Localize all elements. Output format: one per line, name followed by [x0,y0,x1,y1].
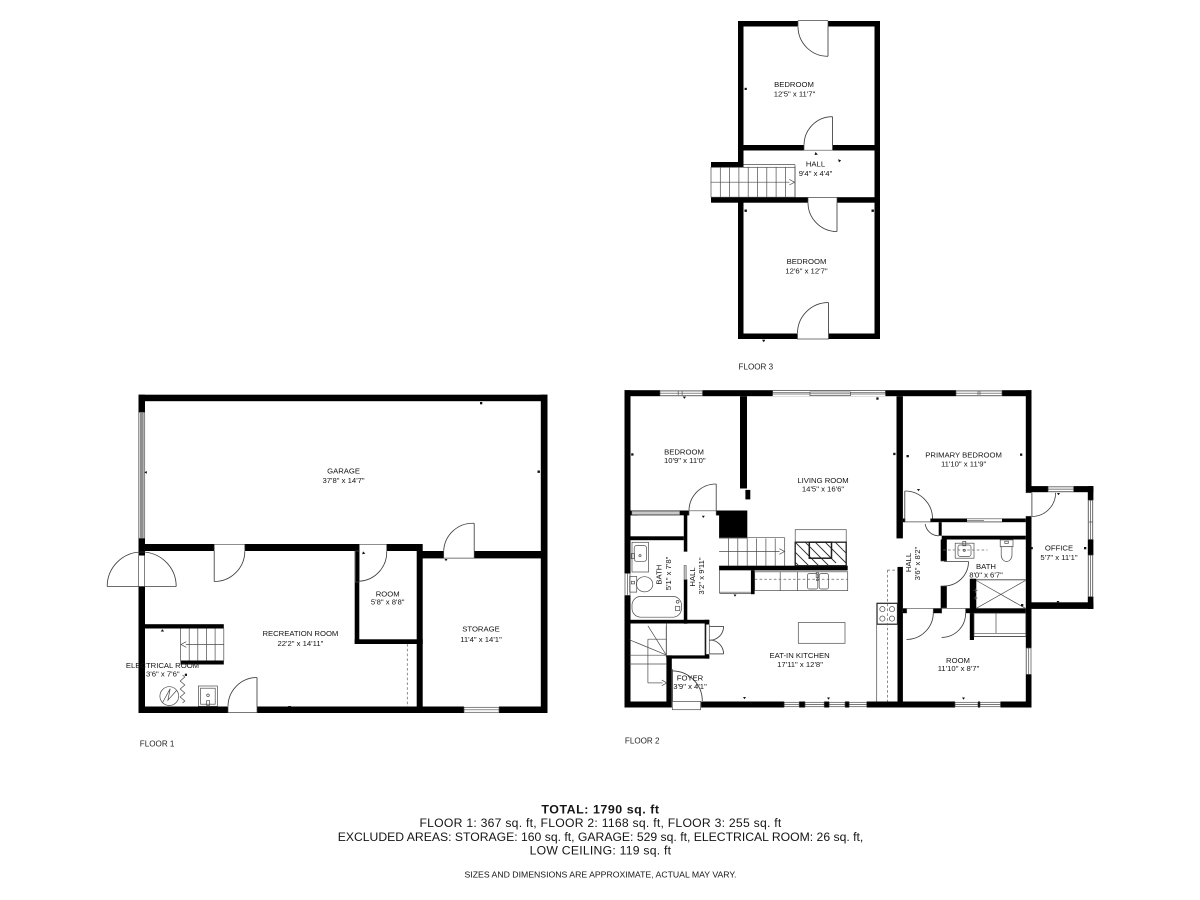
svg-text:FLOOR 1: 367 sq. ft, FLOOR 2:: FLOOR 1: 367 sq. ft, FLOOR 2: 1168 sq. f… [419,816,781,830]
svg-text:14'5" x 16'6": 14'5" x 16'6" [802,484,844,493]
svg-text:BATH: BATH [655,565,664,585]
svg-text:TOTAL: 1790 sq. ft: TOTAL: 1790 sq. ft [541,803,659,817]
svg-text:BEDROOM: BEDROOM [774,80,814,89]
svg-text:EAT-IN KITCHEN: EAT-IN KITCHEN [770,651,830,660]
svg-text:11'10" x 11'9": 11'10" x 11'9" [941,459,987,468]
svg-text:EXCLUDED AREAS: STORAGE: 160 s: EXCLUDED AREAS: STORAGE: 160 sq. ft, GAR… [338,830,864,844]
svg-text:12'5" x 11'7": 12'5" x 11'7" [774,90,816,99]
svg-text:LOW CEILING: 119 sq. ft: LOW CEILING: 119 sq. ft [530,844,672,858]
svg-text:5'8" x 8'8": 5'8" x 8'8" [371,598,405,607]
svg-text:3'9" x 4'1": 3'9" x 4'1" [673,682,707,691]
svg-text:22'2" x 14'11": 22'2" x 14'11" [277,639,323,648]
svg-text:5'7" x 11'1": 5'7" x 11'1" [1040,553,1078,562]
svg-text:PRIMARY BEDROOM: PRIMARY BEDROOM [925,451,1002,460]
svg-text:12'6" x 12'7": 12'6" x 12'7" [785,266,827,275]
svg-text:FLOOR 2: FLOOR 2 [625,736,660,745]
svg-text:11'10" x 8'7": 11'10" x 8'7" [938,664,980,673]
svg-text:BEDROOM: BEDROOM [787,257,827,266]
svg-text:9'4" x 4'4": 9'4" x 4'4" [799,169,833,178]
svg-text:STORAGE: STORAGE [462,625,499,634]
svg-text:10'9" x 11'0": 10'9" x 11'0" [664,456,706,465]
svg-text:RECREATION ROOM: RECREATION ROOM [262,629,338,638]
svg-text:HALL: HALL [688,567,697,587]
svg-text:HALL: HALL [904,552,913,572]
svg-text:HALL: HALL [806,160,826,169]
svg-text:3'6" x 8'2": 3'6" x 8'2" [913,546,922,580]
svg-text:17'11" x 12'8": 17'11" x 12'8" [777,660,823,669]
svg-text:GARAGE: GARAGE [327,466,360,475]
svg-text:5'1" x 7'8": 5'1" x 7'8" [664,556,673,590]
svg-text:11'4" x 14'1": 11'4" x 14'1" [460,635,502,644]
svg-text:8'0" x 6'7": 8'0" x 6'7" [969,570,1003,579]
svg-text:SIZES AND DIMENSIONS ARE APPRO: SIZES AND DIMENSIONS ARE APPROXIMATE, AC… [465,869,737,879]
svg-text:FLOOR 1: FLOOR 1 [140,739,175,748]
svg-text:37'8" x 14'7": 37'8" x 14'7" [323,476,365,485]
svg-text:OFFICE: OFFICE [1045,544,1073,553]
svg-text:3'2" x 9'11": 3'2" x 9'11" [697,557,706,595]
svg-text:3'6" x 7'6": 3'6" x 7'6" [146,669,180,678]
svg-text:FLOOR 3: FLOOR 3 [739,363,774,372]
